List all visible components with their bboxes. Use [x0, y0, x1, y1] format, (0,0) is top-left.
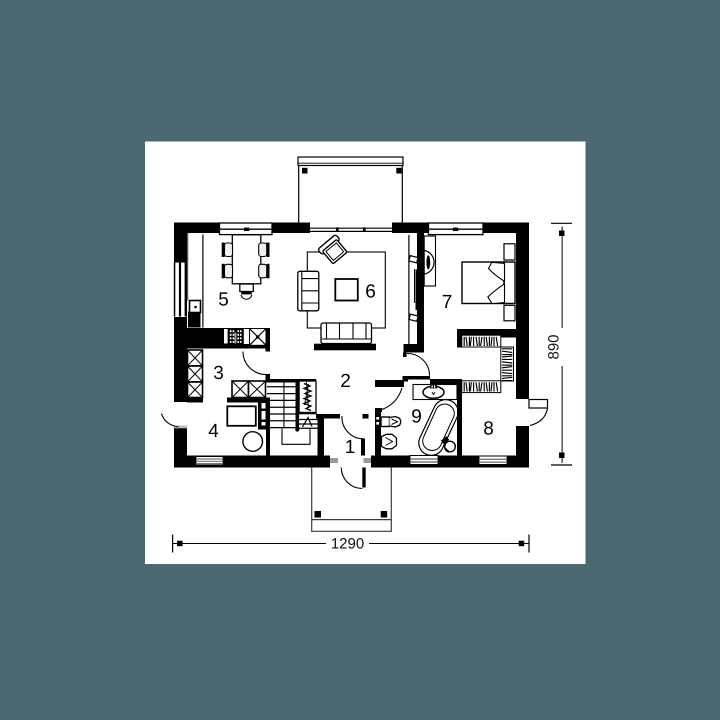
svg-text:2: 2 [340, 371, 351, 392]
svg-text:7: 7 [442, 292, 453, 313]
svg-text:4: 4 [208, 421, 219, 442]
svg-text:1: 1 [345, 437, 356, 458]
svg-text:6: 6 [365, 282, 376, 303]
svg-text:1290: 1290 [331, 536, 364, 553]
svg-text:890: 890 [546, 334, 563, 359]
svg-text:5: 5 [218, 290, 229, 311]
svg-text:3: 3 [213, 363, 224, 384]
svg-text:8: 8 [483, 419, 494, 440]
svg-text:9: 9 [411, 407, 422, 428]
